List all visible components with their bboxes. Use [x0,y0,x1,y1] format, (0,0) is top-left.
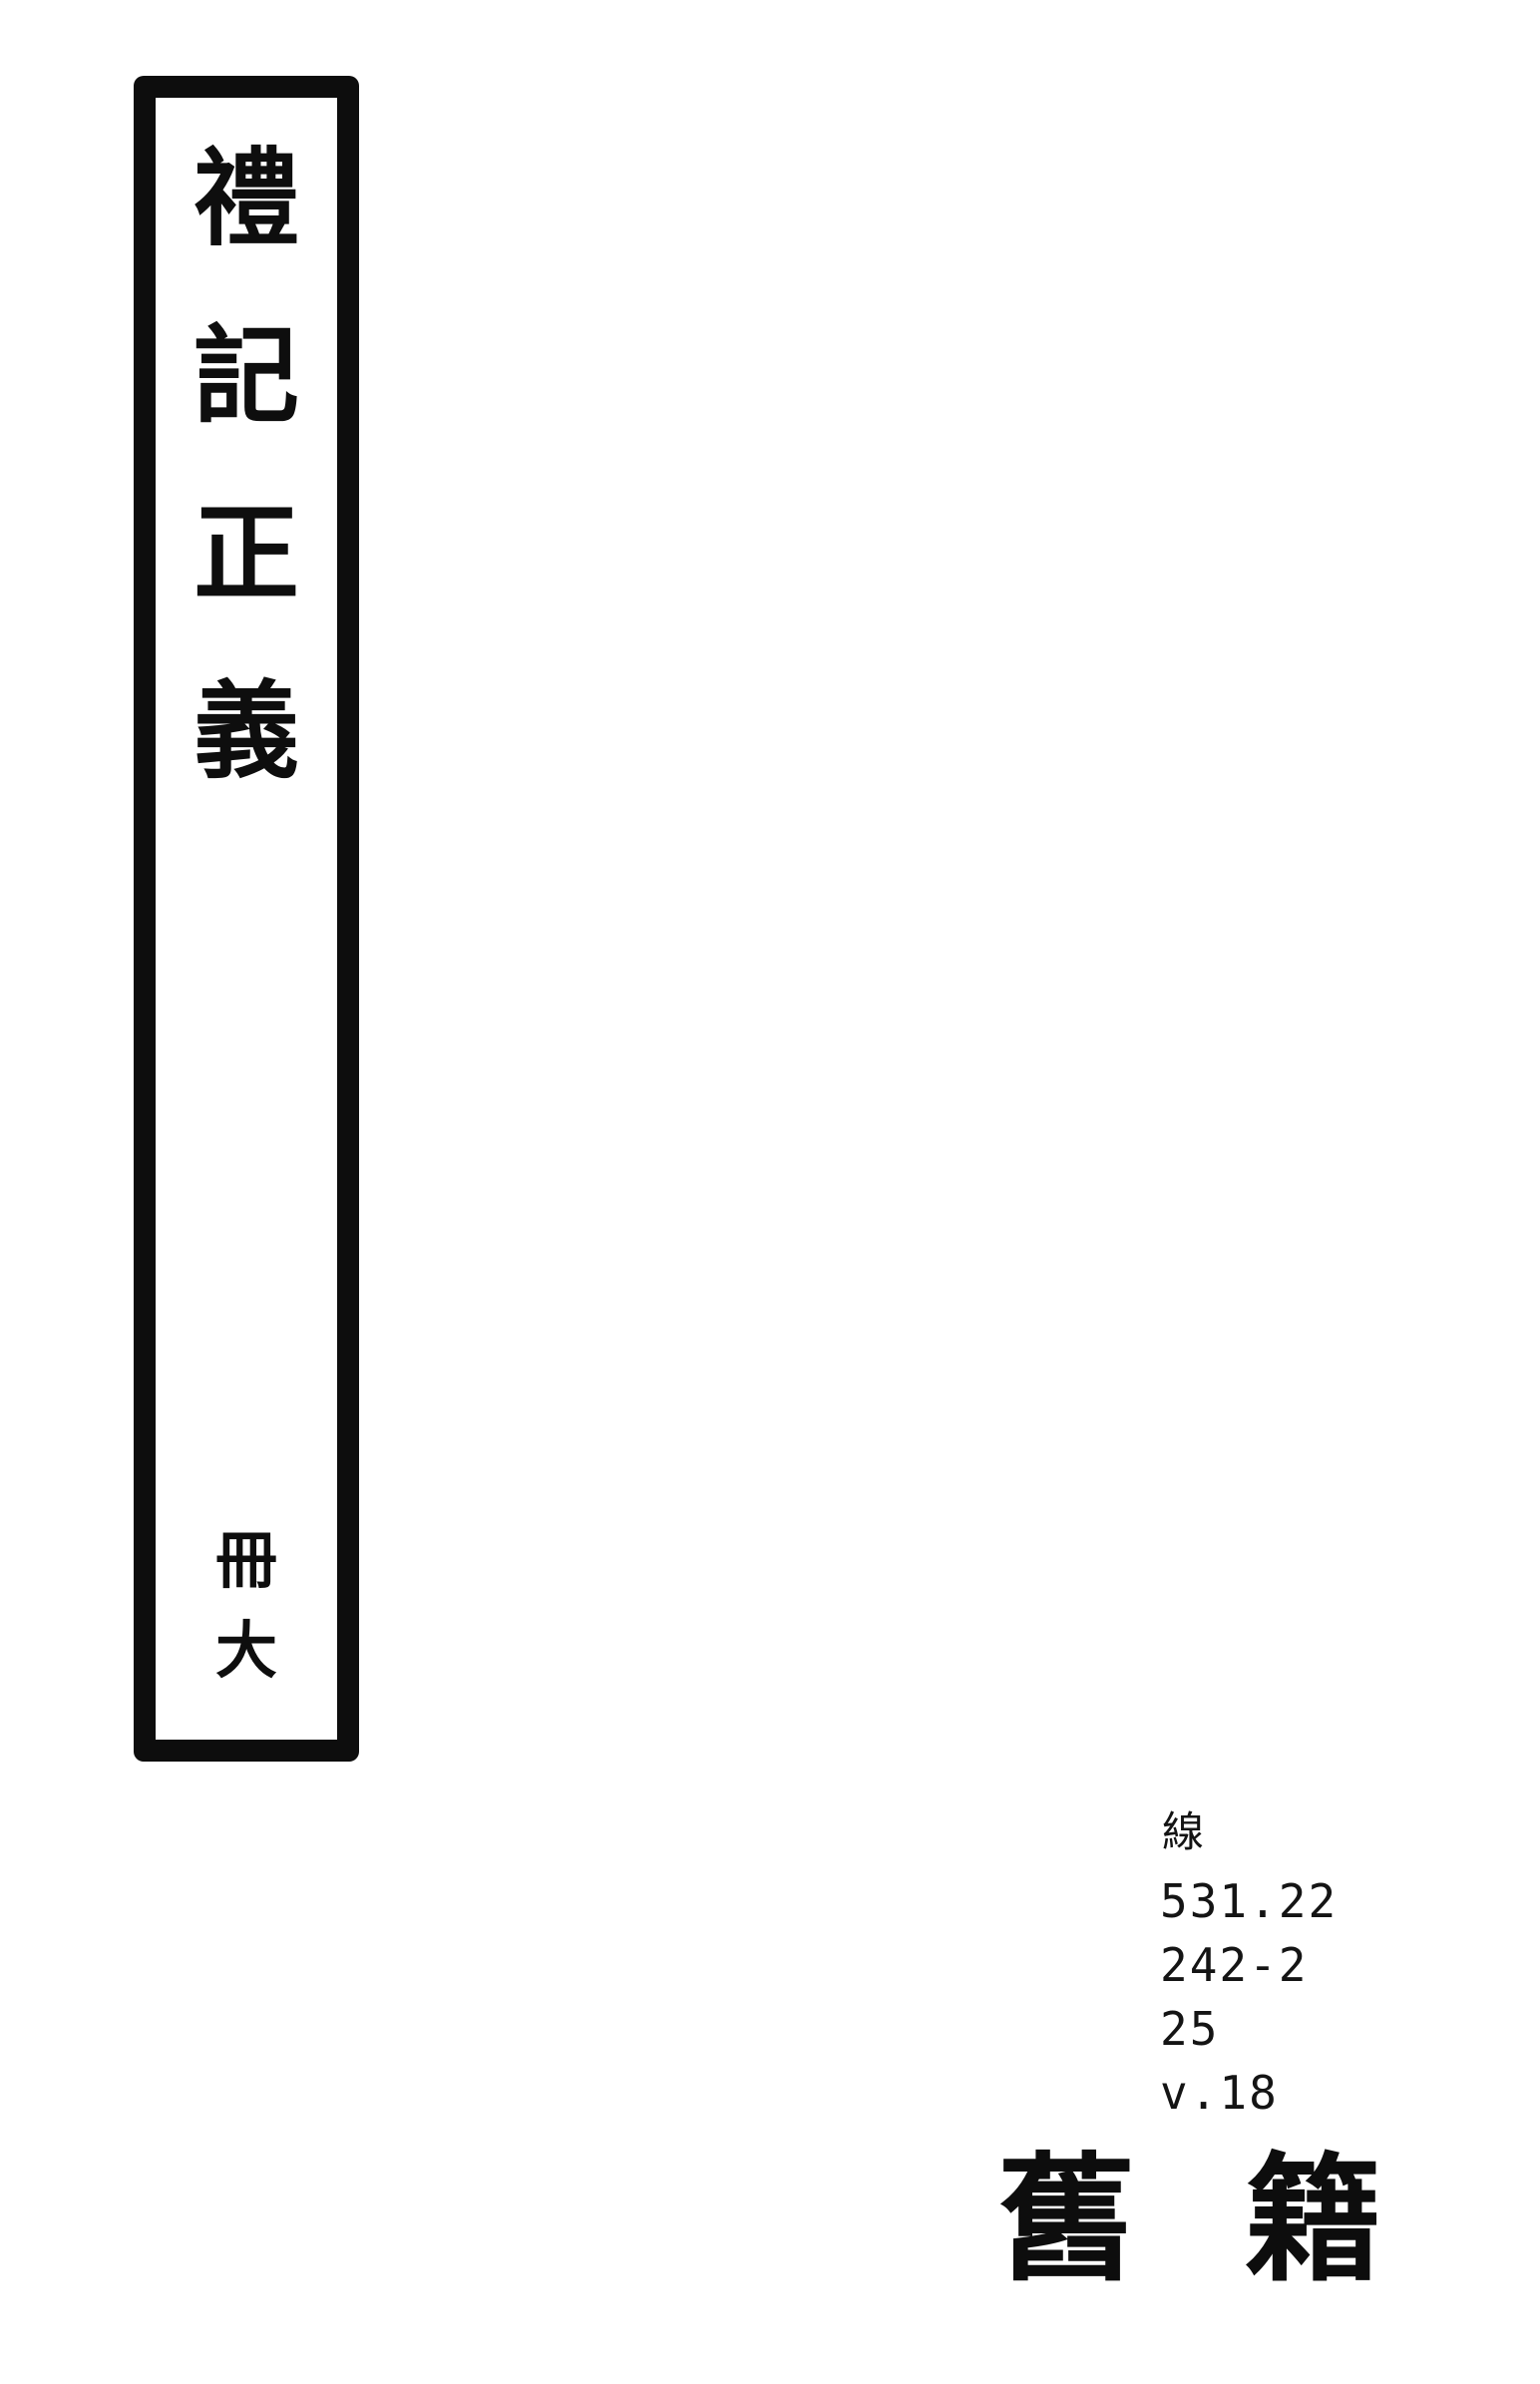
spine-volume-char-2: 大 [215,1620,277,1682]
scanned-book-spine-page: 禮 記 正 義 冊 大 線 531.22 242-2 25 v.18 舊 籍 [0,0,1540,2384]
spine-volume-label: 冊 大 [156,1530,337,1682]
spine-title-char-1: 禮 [193,146,299,251]
spine-title: 禮 記 正 義 [156,146,337,784]
old-books-stamp-char-2: 籍 [1245,2151,1382,2288]
call-number-line-1: 531.22 [1160,1869,1338,1933]
spine-title-char-4: 義 [193,678,299,784]
call-number-line-2: 242-2 [1160,1933,1338,1997]
book-spine-box: 禮 記 正 義 冊 大 [134,76,359,1762]
old-books-stamp: 舊 籍 [997,2151,1382,2288]
call-number-line-3: 25 [1160,1997,1338,2061]
spine-title-char-3: 正 [193,501,299,606]
spine-title-char-2: 記 [193,323,299,429]
old-books-stamp-char-1: 舊 [997,2151,1135,2288]
call-number-class-char: 線 [1162,1811,1338,1853]
call-number-block: 線 531.22 242-2 25 v.18 [1160,1811,1338,2125]
spine-volume-char-1: 冊 [215,1530,277,1592]
call-number-line-4: v.18 [1160,2061,1338,2125]
